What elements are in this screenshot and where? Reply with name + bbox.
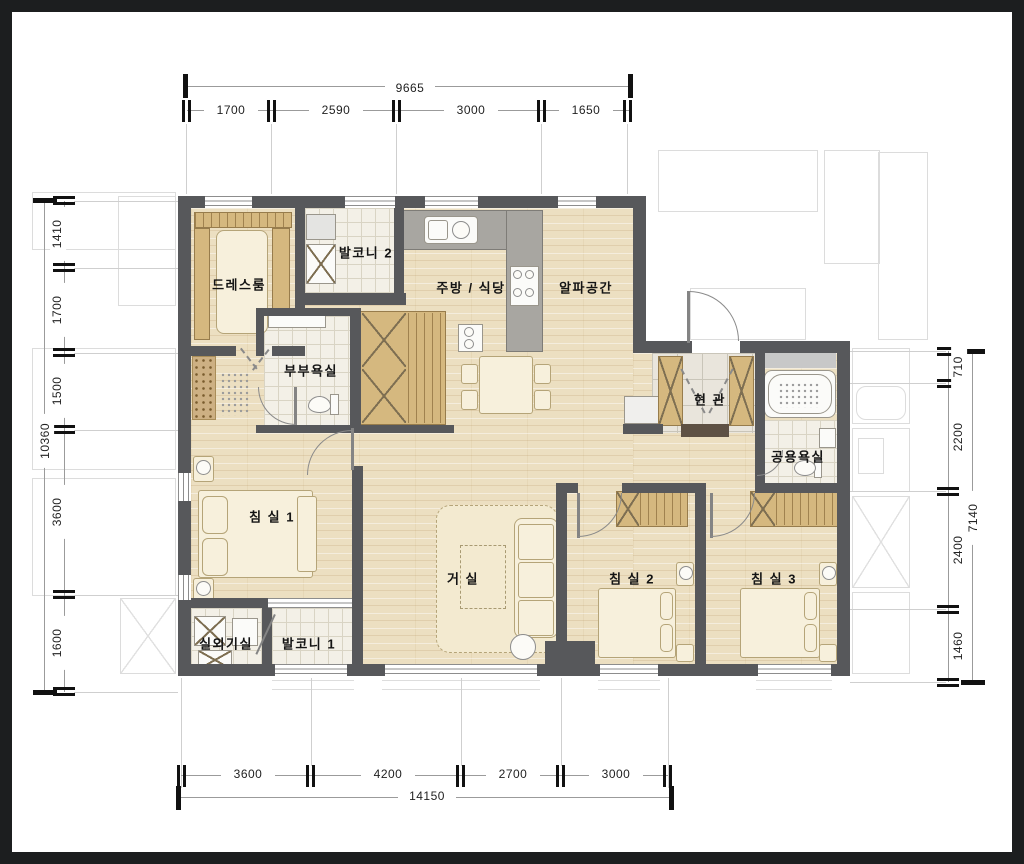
washer: [306, 244, 336, 284]
dim-bottom-total: 14150: [398, 789, 456, 805]
image-frame: [0, 0, 12, 864]
window: [425, 196, 478, 208]
dim-right-2: 2200: [951, 410, 967, 464]
closet-hangers: [640, 493, 686, 525]
window: [758, 664, 831, 676]
dim-right-3: 2400: [951, 523, 967, 577]
dimension-tick: [183, 74, 188, 98]
extension-line: [850, 491, 946, 492]
room-label-kitchen: 주방 / 식당: [436, 278, 505, 297]
dim-left-3: 1500: [50, 364, 66, 418]
neighbor-outline: [878, 152, 928, 340]
wall: [623, 424, 663, 434]
dimension-tick: [537, 100, 546, 122]
wall: [350, 425, 454, 433]
dimension-tick: [306, 765, 315, 787]
toilet-bowl: [308, 396, 331, 413]
dishwasher-dial: [464, 339, 474, 349]
dim-left-5: 1600: [50, 616, 66, 670]
image-frame: [1012, 0, 1024, 864]
sink-basin: [452, 221, 470, 239]
dining-chair: [461, 390, 478, 410]
extension-line: [561, 678, 562, 766]
extension-line: [850, 609, 946, 610]
wall: [272, 346, 305, 356]
extension-line: [850, 682, 946, 683]
neighbor-outline: [858, 438, 884, 474]
room-label-entrance: 현 관: [694, 390, 726, 409]
dim-bottom-2: 4200: [361, 767, 415, 783]
exterior-window-line: [756, 680, 832, 690]
room-label-master-bath: 부부욕실: [284, 361, 338, 380]
dimension-tick: [937, 487, 959, 496]
dim-bottom-1: 3600: [221, 767, 275, 783]
wall: [394, 196, 404, 296]
room-label-balcony2: 발코니 2: [339, 243, 393, 262]
extension-line: [461, 678, 462, 766]
closet-hangers: [776, 493, 836, 525]
dimension-tick: [53, 425, 75, 434]
room-label-alpha-space: 알파공간: [559, 278, 613, 297]
dim-top-3: 3000: [444, 103, 498, 119]
nightstand: [819, 644, 837, 662]
extension-line: [396, 124, 397, 194]
dimension-tick: [623, 100, 632, 122]
exterior-window-line: [598, 680, 660, 690]
dressroom-shelf: [272, 228, 290, 314]
bed-bench: [297, 496, 317, 572]
pillow: [804, 592, 817, 620]
burner: [525, 270, 534, 279]
window: [205, 196, 252, 208]
window: [178, 575, 191, 600]
dim-bottom-4: 3000: [589, 767, 643, 783]
dim-top-2: 2590: [309, 103, 363, 119]
extension-line: [311, 678, 312, 766]
window: [178, 473, 191, 501]
room-label-bedroom2: 침 실 2: [609, 569, 655, 588]
neighbor-outline: [658, 150, 818, 212]
dimension-tick: [33, 690, 57, 695]
dim-right-1: 710: [951, 340, 967, 394]
extension-line: [74, 353, 178, 354]
dining-chair: [534, 364, 551, 384]
wall: [755, 485, 848, 493]
plant: [679, 566, 693, 580]
dimension-tick: [53, 590, 75, 599]
sofa-cushion: [518, 600, 554, 636]
dressroom-shelf: [194, 228, 210, 340]
extension-line: [627, 124, 628, 194]
burner: [525, 288, 534, 297]
window: [268, 598, 352, 608]
neighbor-outline: [852, 496, 910, 588]
extension-line: [850, 351, 946, 352]
wall: [178, 346, 236, 356]
window: [600, 664, 658, 676]
hall-rug: [192, 356, 216, 420]
pillow: [202, 538, 228, 576]
dimension-tick: [176, 786, 181, 810]
room-label-dressroom: 드레스룸: [212, 275, 266, 294]
bath-vanity: [268, 315, 326, 328]
side-table: [510, 634, 536, 660]
room-label-outdoor-unit: 실외기실: [199, 634, 253, 653]
wall: [352, 598, 363, 676]
dim-top-4: 1650: [559, 103, 613, 119]
dimension-tick: [556, 765, 565, 787]
dining-chair: [534, 390, 551, 410]
wall-pier: [545, 641, 595, 676]
room-label-balcony1: 발코니 1: [282, 634, 336, 653]
wardrobe-door: [362, 369, 406, 423]
dim-left-2: 1700: [50, 283, 66, 337]
plant: [822, 566, 836, 580]
extension-line: [271, 124, 272, 194]
wall: [295, 293, 406, 305]
dim-left-1: 1410: [50, 207, 66, 261]
neighbor-outline: [852, 592, 910, 674]
dining-table: [479, 356, 533, 414]
dim-bottom-3: 2700: [486, 767, 540, 783]
dim-right-4: 1460: [951, 619, 967, 673]
plant: [196, 581, 211, 596]
wall: [633, 196, 646, 353]
image-frame: [0, 852, 1024, 864]
bath-niche: [762, 353, 836, 368]
dim-left-4: 3600: [50, 485, 66, 539]
wall: [633, 341, 692, 353]
dimension-tick: [182, 100, 191, 122]
neighbor-outline: [120, 598, 176, 674]
dimension-tick: [53, 263, 75, 272]
extension-line: [74, 595, 178, 596]
dim-right-total: 7140: [966, 491, 982, 545]
dimension-tick: [669, 786, 674, 810]
window: [385, 664, 537, 676]
dimension-line: [948, 351, 949, 682]
plant: [196, 460, 211, 475]
dining-chair: [461, 364, 478, 384]
wall: [556, 483, 567, 676]
exterior-window-line: [272, 680, 354, 690]
dim-left-total: 10360: [38, 414, 54, 468]
extension-line: [74, 692, 178, 693]
extension-line: [850, 383, 946, 384]
room-label-bedroom3: 침 실 3: [751, 569, 797, 588]
cabinet: [624, 396, 660, 424]
bath-mat: [778, 382, 820, 408]
dimension-tick: [53, 348, 75, 357]
extension-line: [541, 124, 542, 194]
neighbor-outline: [118, 196, 176, 306]
burner: [513, 270, 522, 279]
burner: [513, 288, 522, 297]
dimension-tick: [392, 100, 401, 122]
extension-line: [74, 201, 178, 202]
dimension-tick: [937, 678, 959, 687]
wall: [695, 483, 706, 676]
pillow: [202, 496, 228, 534]
window: [345, 196, 395, 208]
dressroom-shelf: [194, 212, 292, 228]
floor-plan-canvas: 드레스룸 발코니 2 주방 / 식당 알파공간 부부욕실 현 관 공용욕실 침 …: [0, 0, 1024, 864]
neighbor-outline: [856, 386, 906, 420]
dimension-tick: [267, 100, 276, 122]
pillow: [804, 624, 817, 652]
window: [275, 664, 347, 676]
wall: [837, 341, 850, 676]
dimension-tick: [628, 74, 633, 98]
neighbor-outline: [824, 150, 880, 264]
image-frame: [0, 0, 1024, 12]
sofa-cushion: [518, 524, 554, 560]
wall: [350, 308, 361, 433]
extension-line: [186, 124, 187, 194]
window: [558, 196, 596, 208]
entrance-mat: [681, 424, 729, 437]
dimension-tick: [33, 198, 57, 203]
dishwasher-dial: [464, 327, 474, 337]
toilet-tank: [330, 394, 339, 415]
shoe-closet: [658, 356, 683, 426]
wardrobe-door: [362, 313, 406, 367]
room-label-living: 거 실: [447, 569, 479, 588]
extension-line: [74, 268, 178, 269]
pillow: [660, 624, 673, 652]
wall: [256, 308, 358, 316]
nightstand: [676, 644, 694, 662]
room-label-common-bath: 공용욕실: [771, 447, 825, 466]
room-label-bedroom1: 침 실 1: [249, 507, 295, 526]
dimension-tick: [961, 680, 985, 685]
dimension-tick: [177, 765, 186, 787]
storage-box: [306, 214, 336, 240]
wall: [352, 466, 363, 608]
wall: [178, 598, 268, 608]
sink-basin: [428, 220, 448, 240]
extension-line: [74, 430, 178, 431]
pillow: [660, 592, 673, 620]
wardrobe-hangers: [408, 313, 444, 423]
wall: [256, 308, 264, 356]
dim-top-1: 1700: [204, 103, 258, 119]
dimension-tick: [937, 605, 959, 614]
door-mat: [220, 372, 250, 416]
wall: [622, 483, 706, 493]
sofa-cushion: [518, 562, 554, 598]
shoe-closet: [729, 356, 754, 426]
dimension-tick: [663, 765, 672, 787]
wall: [295, 196, 305, 308]
dimension-tick: [456, 765, 465, 787]
bath-sink: [819, 428, 836, 448]
dim-top-total: 9665: [385, 81, 435, 97]
